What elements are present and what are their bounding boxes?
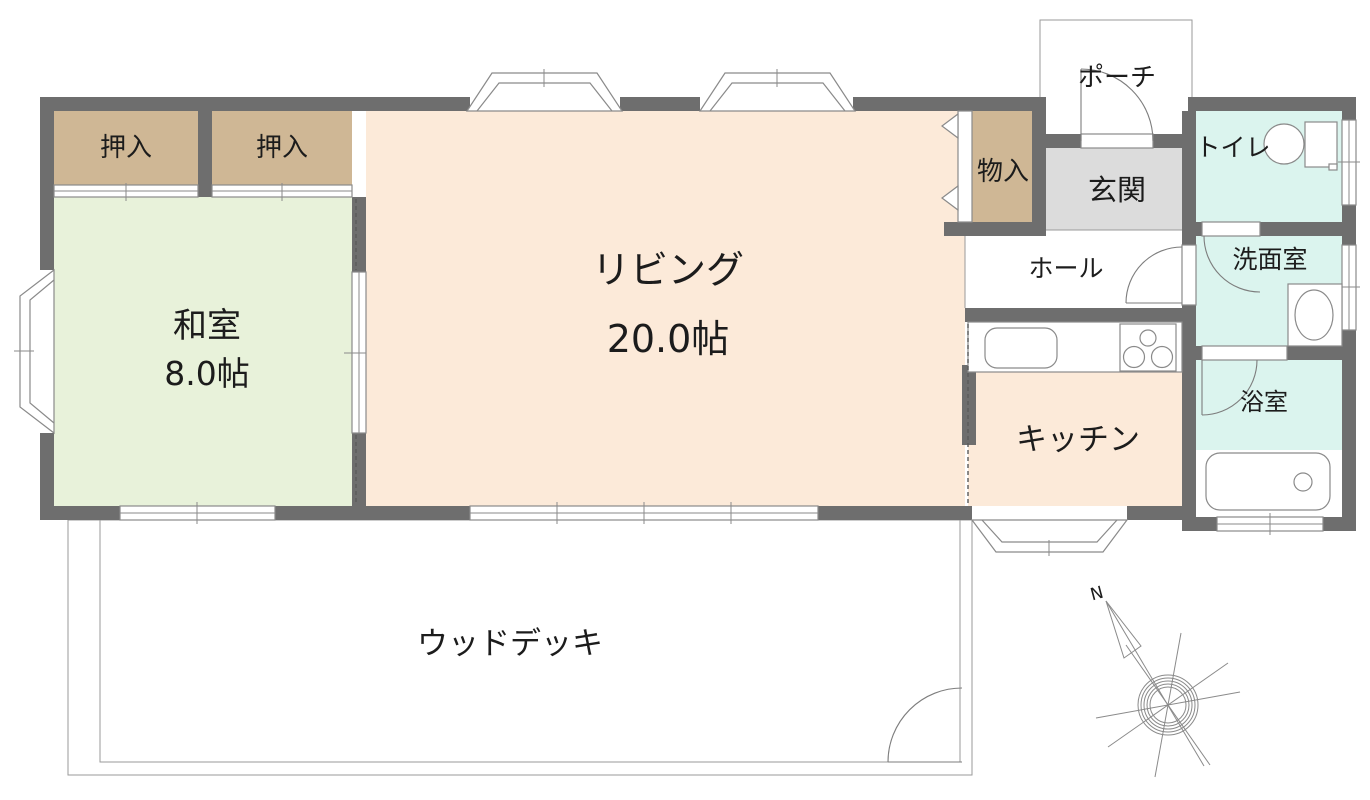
bathroom-door-gap bbox=[1202, 346, 1287, 360]
label-toilet: トイレ bbox=[1195, 133, 1270, 162]
wall-top-b bbox=[620, 97, 700, 111]
toilet-handle bbox=[1329, 164, 1337, 170]
bay-window-living-2 bbox=[700, 69, 855, 111]
wall-closet-divider bbox=[198, 111, 212, 197]
kitchen-sink bbox=[985, 328, 1057, 368]
compass-rose: N bbox=[1088, 583, 1240, 777]
kitchen-counter bbox=[968, 322, 1182, 372]
wall-top-a bbox=[40, 97, 470, 111]
wall-monoire-right bbox=[1032, 111, 1046, 236]
entrance-door-threshold bbox=[1081, 134, 1153, 148]
label-porch: ポーチ bbox=[1078, 63, 1156, 93]
label-kitchen: キッチン bbox=[1016, 422, 1140, 458]
floor-plan: N 押入 押入 和室 8.0帖 リビング 20.0帖 物入 ポーチ 玄関 トイレ… bbox=[0, 0, 1370, 800]
toilet-door-gap bbox=[1202, 222, 1260, 236]
bay-window-kitchen bbox=[972, 520, 1127, 556]
wall-living-kitchen-stub bbox=[962, 365, 976, 445]
wall-bottom-b bbox=[275, 506, 470, 520]
wall-left-a bbox=[40, 97, 54, 270]
label-washroom: 洗面室 bbox=[1232, 245, 1307, 274]
wall-monoire-bottom bbox=[944, 222, 1046, 236]
wall-bottom-c bbox=[818, 506, 972, 520]
hall-washroom-door-gap bbox=[1182, 245, 1196, 305]
label-oshiire-left: 押入 bbox=[100, 133, 152, 163]
label-living: リビング bbox=[592, 248, 744, 292]
wall-genkan-top-a bbox=[1032, 134, 1081, 148]
wall-washitsu-living-a bbox=[352, 197, 366, 272]
washbasin bbox=[1288, 284, 1342, 346]
wall-top-d bbox=[1188, 97, 1356, 111]
wall-bottom-a bbox=[40, 506, 120, 520]
closet-door-strip bbox=[958, 111, 972, 222]
wall-hall-kitchen bbox=[965, 308, 1196, 322]
toilet-tank bbox=[1305, 122, 1337, 167]
bay-window-living-1 bbox=[467, 69, 622, 111]
label-washitsu: 和室 bbox=[173, 306, 241, 346]
label-oshiire-right: 押入 bbox=[256, 133, 308, 163]
bathtub bbox=[1206, 453, 1330, 510]
washbasin-cabinet bbox=[1288, 284, 1342, 346]
label-living-size: 20.0帖 bbox=[607, 317, 730, 361]
label-bathroom: 浴室 bbox=[1240, 388, 1288, 416]
wall-top-c bbox=[853, 97, 1046, 111]
label-washitsu-size: 8.0帖 bbox=[164, 354, 249, 393]
bay-window-washitsu bbox=[14, 270, 54, 433]
label-hall: ホール bbox=[1028, 254, 1103, 283]
label-genkan: 玄関 bbox=[1088, 173, 1146, 207]
room-living bbox=[366, 111, 965, 506]
deck-gate-swing-arc bbox=[888, 688, 962, 762]
label-monoire: 物入 bbox=[977, 157, 1029, 187]
label-wood-deck: ウッドデッキ bbox=[417, 626, 603, 662]
floor-plan-svg: N 押入 押入 和室 8.0帖 リビング 20.0帖 物入 ポーチ 玄関 トイレ… bbox=[0, 0, 1370, 800]
wall-washitsu-living-b bbox=[352, 433, 366, 506]
compass-north-label: N bbox=[1088, 583, 1105, 606]
